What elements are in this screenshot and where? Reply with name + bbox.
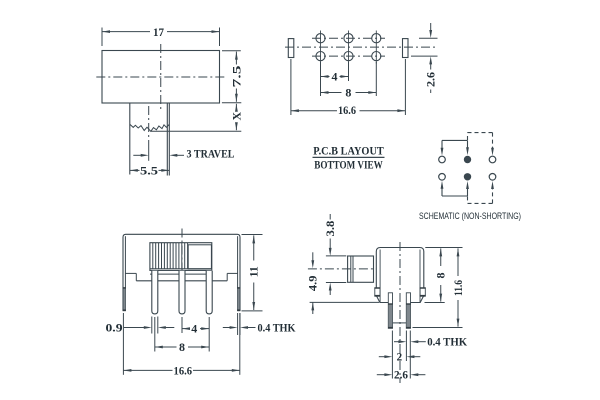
svg-text:4: 4 (332, 70, 338, 84)
svg-text:2.6: 2.6 (424, 72, 438, 87)
svg-text:0.4 THK: 0.4 THK (427, 335, 468, 349)
svg-text:11.6: 11.6 (451, 280, 465, 296)
svg-text:8: 8 (345, 86, 351, 100)
svg-text:SCHEMATIC (NON-SHORTING): SCHEMATIC (NON-SHORTING) (419, 211, 521, 222)
svg-text:X: X (229, 112, 243, 121)
svg-text:5.5: 5.5 (140, 163, 158, 177)
svg-text:11: 11 (247, 266, 261, 277)
svg-text:17: 17 (153, 25, 164, 39)
svg-text:7.5: 7.5 (229, 65, 243, 87)
svg-text:0.9: 0.9 (106, 320, 123, 334)
svg-text:P.C.B LAYOUT: P.C.B LAYOUT (313, 143, 384, 157)
svg-text:BOTTOM VIEW: BOTTOM VIEW (314, 157, 383, 171)
svg-text:16.6: 16.6 (338, 103, 356, 117)
svg-text:3 TRAVEL: 3 TRAVEL (187, 147, 235, 161)
svg-text:16.6: 16.6 (174, 363, 193, 377)
svg-text:3.8: 3.8 (323, 221, 337, 237)
svg-text:4.9: 4.9 (306, 276, 320, 292)
svg-text:8: 8 (434, 273, 448, 279)
svg-text:2.6: 2.6 (394, 368, 408, 382)
svg-text:4: 4 (191, 322, 197, 336)
svg-text:0.4 THK: 0.4 THK (258, 320, 297, 334)
svg-text:8: 8 (179, 340, 185, 354)
svg-text:2: 2 (397, 350, 403, 364)
